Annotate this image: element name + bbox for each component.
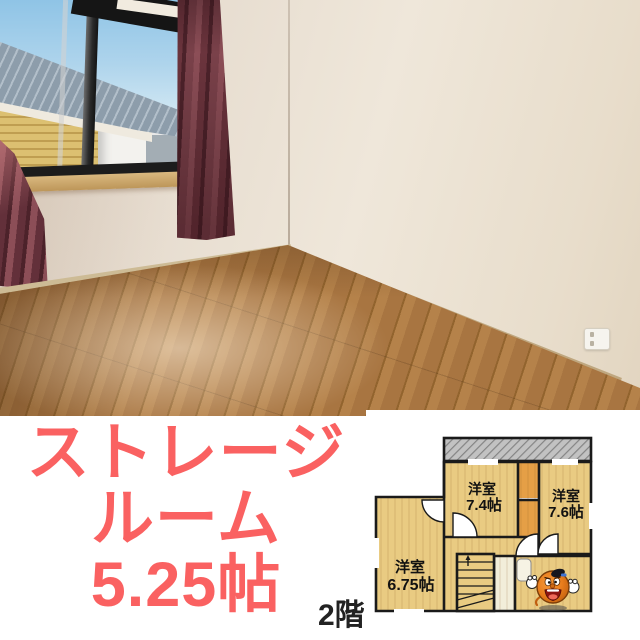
room2-type: 洋室 [552,488,580,504]
wall-corner-line [288,0,290,254]
staircase [457,554,494,611]
floor-label: 2階 [318,599,365,632]
balcony-hatched [444,438,591,461]
room3-type: 洋室 [395,558,425,576]
floorplan: 洋室 7.4帖 洋室 7.6帖 洋室 6.75帖 2階 [306,410,640,640]
room1-type: 洋室 [468,481,496,497]
room3-size: 6.75帖 [387,575,434,594]
room2-size: 7.6帖 [548,503,584,521]
listing-image: { "caption": { "line1": "ストレージ", "line2"… [0,0,640,640]
room-photo [0,0,640,417]
room1-size: 7.4帖 [466,496,502,514]
power-outlet [584,328,610,350]
